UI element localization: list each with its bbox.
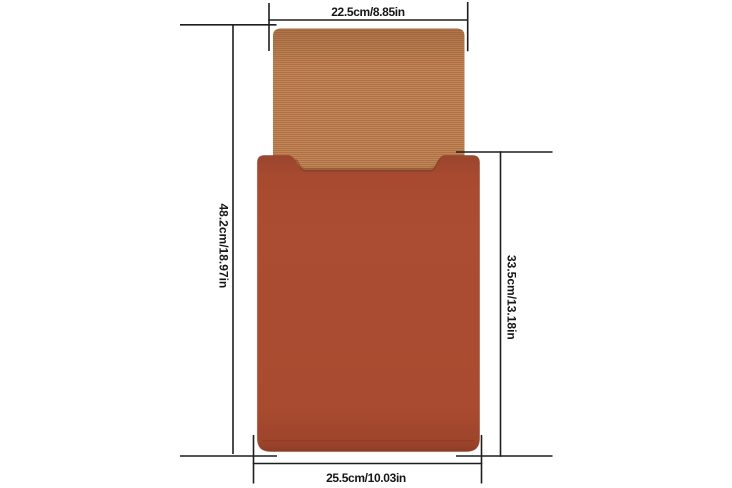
svg-text:48.2cm/18.97in: 48.2cm/18.97in [217,204,231,289]
svg-text:22.5cm/8.85in: 22.5cm/8.85in [331,5,405,19]
svg-text:33.5cm/13.18in: 33.5cm/13.18in [505,255,519,340]
svg-text:25.5cm/10.03in: 25.5cm/10.03in [326,471,406,485]
